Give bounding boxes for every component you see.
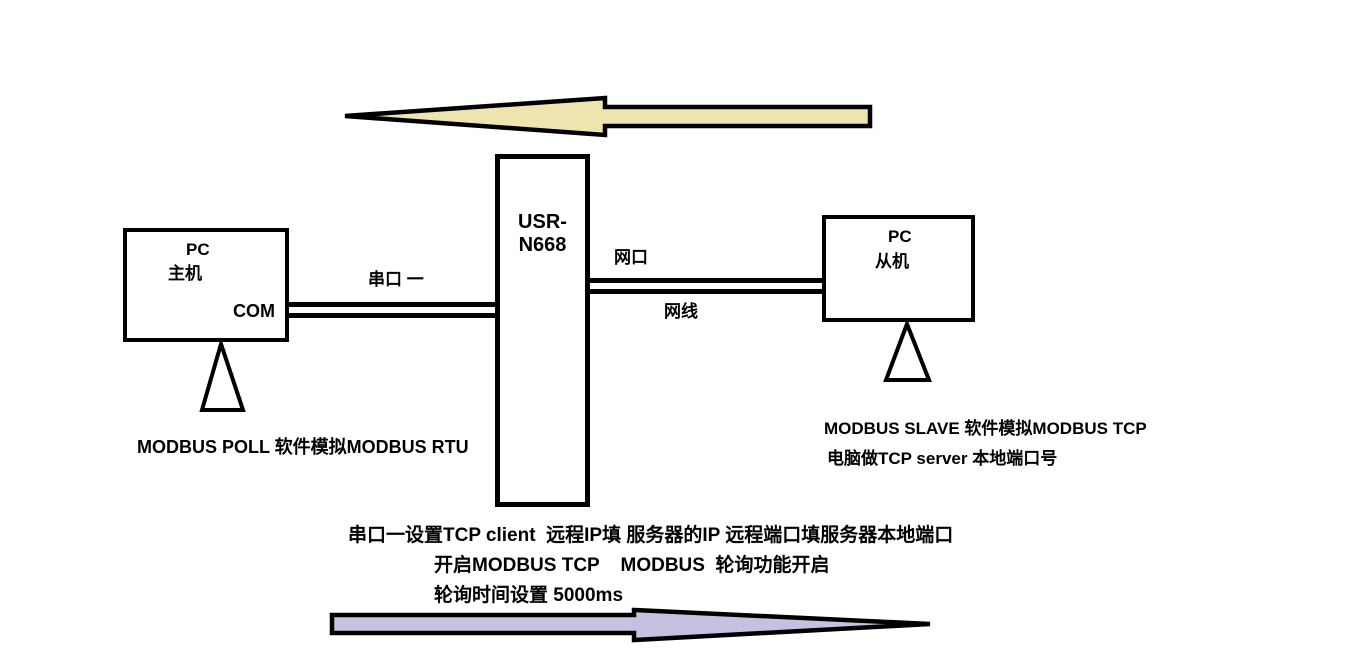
- serial-port-label: 串口 一: [368, 271, 424, 290]
- device-label: USR-N668: [500, 211, 585, 257]
- serial-line-bottom: [288, 313, 495, 318]
- left-pc-stand-triangle-icon: [195, 338, 250, 416]
- ethernet-port-label: 网口: [614, 249, 648, 268]
- right-note-modbus-slave: MODBUS SLAVE 软件模拟MODBUS TCP: [824, 420, 1147, 439]
- bottom-note-line1: 串口一设置TCP client 远程IP填 服务器的IP 远程端口填服务器本地端…: [348, 526, 953, 547]
- left-pc-com-port-label: COM: [233, 302, 275, 322]
- left-pc-title: PC: [186, 241, 210, 260]
- right-triangle-shape: [886, 324, 929, 380]
- right-pc-title: PC: [888, 228, 912, 247]
- right-pc-box: PC 从机: [822, 215, 975, 322]
- ethernet-line-bottom: [590, 289, 822, 294]
- top-left-arrow-icon: [330, 88, 880, 143]
- bottom-right-arrow-icon: [325, 598, 940, 648]
- right-note-tcp-server: 电脑做TCP server 本地端口号: [827, 450, 1057, 469]
- right-pc-stand-triangle-icon: [880, 318, 935, 386]
- device-box-usr-n668: USR-N668: [495, 154, 590, 507]
- left-triangle-shape: [202, 344, 243, 410]
- left-pc-role: 主机: [168, 265, 202, 284]
- serial-line-top: [288, 302, 495, 307]
- bottom-right-arrow-shape: [332, 610, 930, 640]
- left-note-modbus-poll: MODBUS POLL 软件模拟MODBUS RTU: [137, 438, 469, 458]
- ethernet-cable-label: 网线: [664, 303, 698, 322]
- right-pc-role: 从机: [875, 253, 909, 272]
- bottom-note-line2: 开启MODBUS TCP MODBUS 轮询功能开启: [434, 556, 830, 577]
- ethernet-line-top: [590, 278, 822, 283]
- left-pc-box: PC 主机 COM: [123, 228, 289, 342]
- diagram-canvas: USR-N668 PC 主机 COM 串口 一 网口 网线 PC 从机 MODB…: [0, 0, 1360, 648]
- top-left-arrow-shape: [345, 98, 870, 135]
